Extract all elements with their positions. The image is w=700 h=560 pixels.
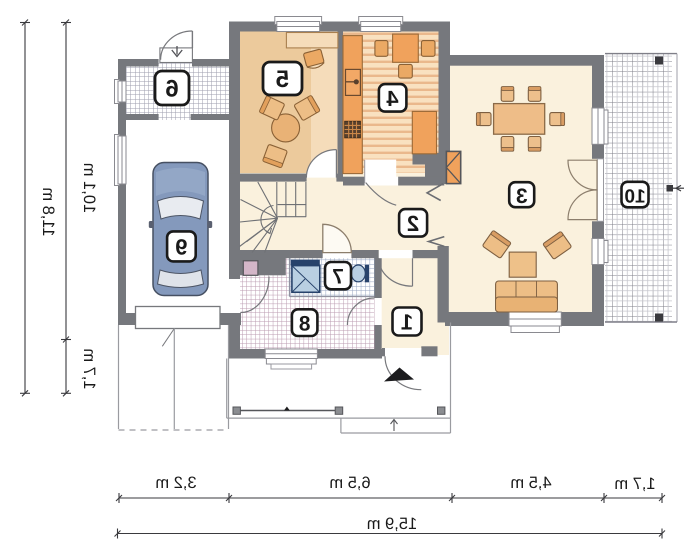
svg-text:9: 9 [175, 235, 187, 260]
svg-text:7: 7 [332, 266, 344, 289]
svg-text:11,8 m: 11,8 m [39, 187, 57, 236]
svg-text:6: 6 [165, 76, 178, 103]
svg-text:2: 2 [407, 211, 419, 236]
svg-text:4: 4 [386, 86, 399, 111]
svg-text:15,9 m: 15,9 m [367, 515, 417, 533]
svg-text:6,5 m: 6,5 m [329, 474, 370, 492]
svg-text:3,2 m: 3,2 m [155, 474, 196, 492]
svg-text:8: 8 [298, 313, 310, 336]
svg-text:5: 5 [276, 66, 289, 93]
svg-text:1: 1 [401, 310, 413, 335]
svg-text:4,5 m: 4,5 m [510, 474, 551, 492]
svg-text:1,7 m: 1,7 m [614, 475, 655, 493]
svg-text:3: 3 [516, 185, 528, 208]
svg-text:1,7 m: 1,7 m [80, 348, 98, 389]
svg-text:10: 10 [624, 187, 645, 208]
svg-text:10,1 m: 10,1 m [80, 163, 98, 213]
